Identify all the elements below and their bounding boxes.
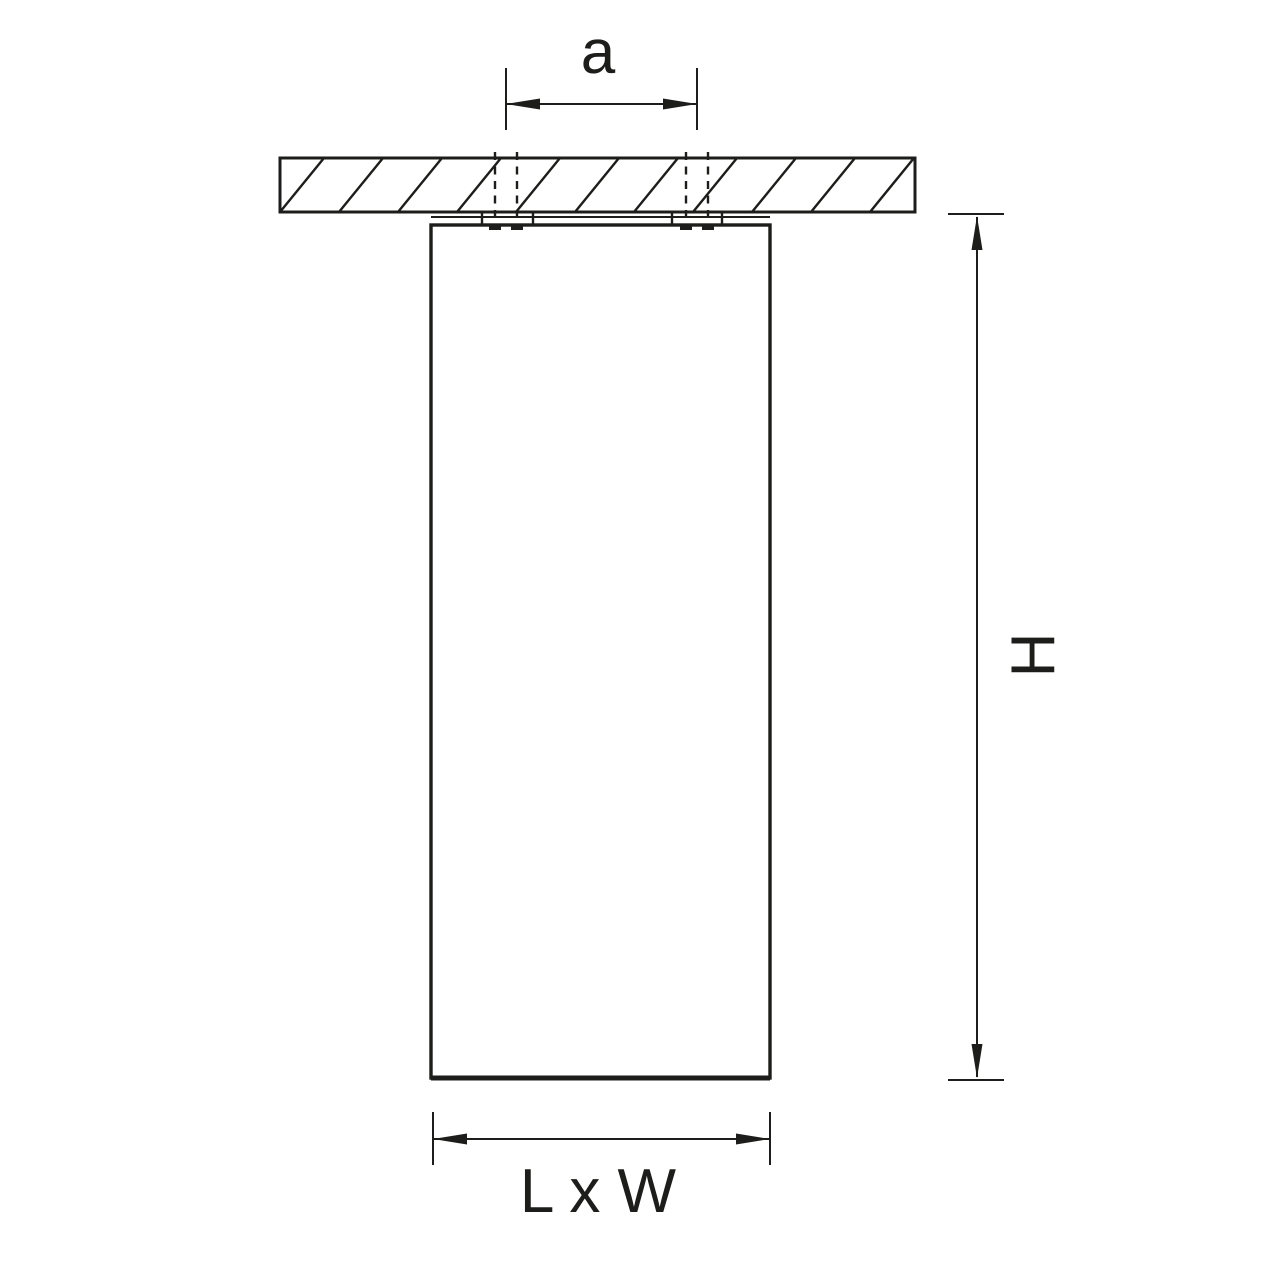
dimension-a: a <box>506 18 697 130</box>
arrowhead-left <box>506 99 540 110</box>
mounting-bracket <box>431 212 770 225</box>
screw-nut <box>702 224 714 230</box>
arrowhead-down <box>972 1044 983 1078</box>
fixture-body <box>431 225 770 1078</box>
arrowhead-up <box>972 216 983 250</box>
fixture-body-outline <box>431 225 770 1078</box>
dimension-lxw-label: L x W <box>520 1157 677 1226</box>
dimension-lxw: L x W <box>433 1112 770 1226</box>
screw-nut <box>489 224 501 230</box>
dimension-drawing: a H L x W <box>0 0 1280 1280</box>
drawing-canvas: a H L x W <box>0 0 1280 1280</box>
arrowhead-right <box>663 99 697 110</box>
screw-nut <box>511 224 523 230</box>
arrowhead-right <box>736 1134 770 1145</box>
dimension-a-label: a <box>581 18 616 87</box>
dimension-h: H <box>948 214 1069 1080</box>
ceiling-slab <box>280 158 915 212</box>
dimension-h-label: H <box>1000 633 1069 678</box>
screw-nut <box>680 224 692 230</box>
arrowhead-left <box>433 1134 467 1145</box>
